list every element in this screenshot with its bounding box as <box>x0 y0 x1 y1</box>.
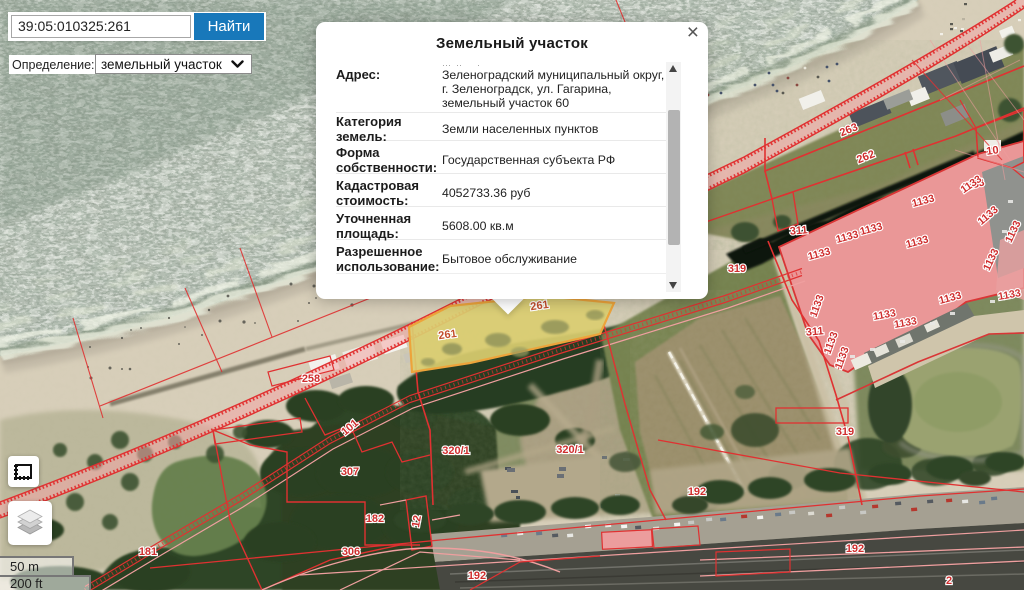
svg-text:311: 311 <box>789 224 808 238</box>
svg-text:258: 258 <box>302 373 320 385</box>
svg-text:319: 319 <box>836 426 854 438</box>
svg-text:10: 10 <box>986 144 1000 158</box>
svg-text:306: 306 <box>342 546 360 558</box>
svg-text:192: 192 <box>468 570 486 582</box>
svg-text:182: 182 <box>366 513 384 525</box>
svg-text:261: 261 <box>530 299 550 313</box>
svg-text:192: 192 <box>846 543 864 555</box>
svg-text:181: 181 <box>139 546 157 558</box>
svg-text:319: 319 <box>728 263 746 275</box>
svg-text:12: 12 <box>410 514 424 528</box>
svg-text:307: 307 <box>341 466 359 478</box>
svg-text:311: 311 <box>805 325 824 339</box>
svg-text:261: 261 <box>438 328 458 342</box>
svg-text:2: 2 <box>946 575 952 587</box>
svg-text:320/1: 320/1 <box>556 444 584 456</box>
svg-text:320/1: 320/1 <box>442 445 470 457</box>
svg-text:192: 192 <box>688 486 706 498</box>
